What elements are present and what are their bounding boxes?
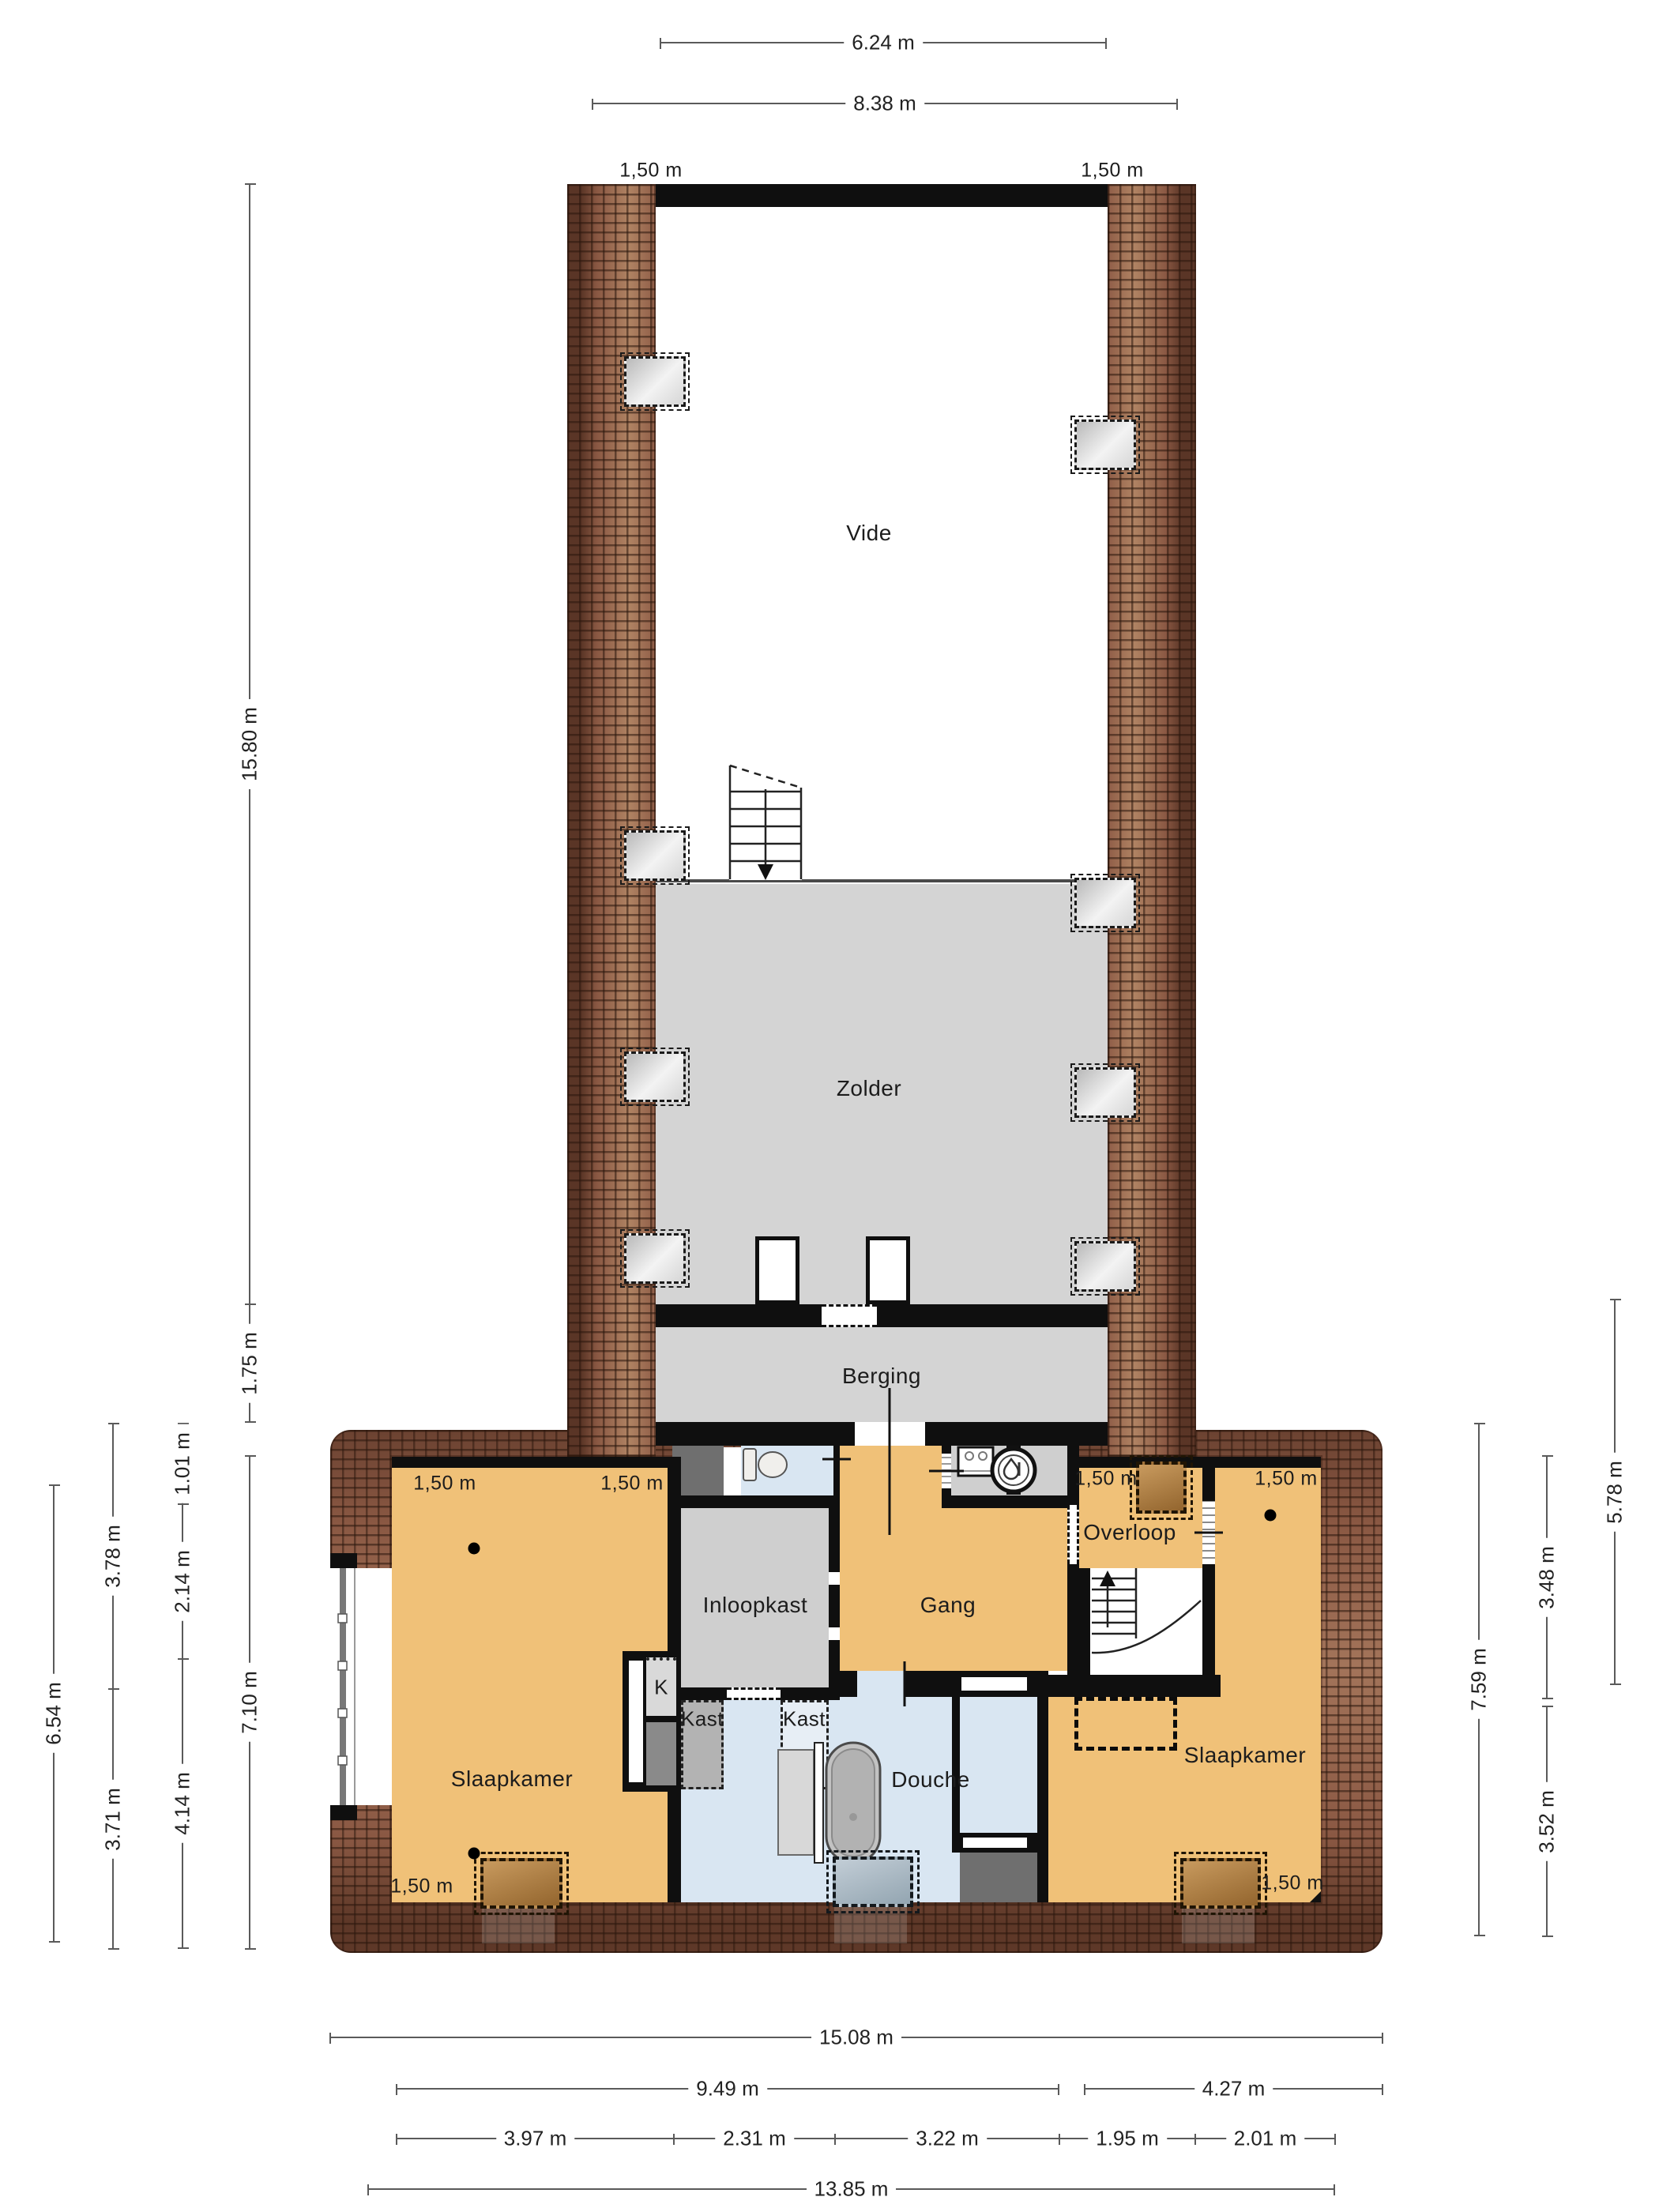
skylight-dashed-icon [833,1856,913,1907]
label-douche: Douche [891,1767,970,1793]
dim-bottom-3-97: 3.97 m [397,2138,674,2139]
dim-bottom-2-01: 2.01 m [1195,2138,1335,2139]
headroom-label: 1,50 m [390,1875,453,1898]
label-kast-k: K [654,1676,668,1700]
label-kast-left: Kast [681,1707,724,1732]
skylight-dashed-icon [1136,1461,1187,1514]
headroom-label: 1,50 m [600,1473,663,1495]
dim-bottom-9-49: 9.49 m [397,2088,1059,2090]
dim-bottom-1-95: 1.95 m [1059,2138,1195,2139]
roof-window-dashed-icon [1074,1067,1136,1118]
label-berging: Berging [842,1364,921,1389]
dim-right-7-59: 7.59 m [1478,1424,1480,1935]
label-zolder: Zolder [837,1076,901,1101]
label-slaapkamer-left: Slaapkamer [451,1766,573,1792]
window-west-frame [338,1568,355,1805]
door-tick-marks [822,1388,1223,1706]
roof-window-dashed-icon [1074,878,1136,928]
boiler-icon [992,1446,1035,1495]
roof-window-dashed-icon [624,1233,686,1284]
headroom-label: 1,50 m [1261,1872,1323,1895]
dim-bottom-3-22: 3.22 m [835,2138,1059,2139]
dim-top-6-24: 6.24 m [660,42,1106,43]
headroom-label: 1,50 m [1074,1468,1137,1491]
stairs-down-arrow-icon [730,766,801,880]
dim-left-4-14: 4.14 m [182,1659,183,1948]
skylight-dashed-icon [1180,1858,1261,1909]
label-overloop: Overloop [1083,1520,1176,1545]
roof-window-dashed-icon [1074,419,1136,470]
skylight-dashed-icon [480,1858,562,1909]
dim-bottom-15-08: 15.08 m [330,2037,1382,2038]
dim-bottom-4-27: 4.27 m [1085,2088,1382,2090]
label-gang: Gang [920,1593,976,1618]
dim-left-1-01: 1.01 m [182,1424,183,1504]
stairs-up-arrow-icon [1092,1568,1201,1653]
headroom-label: 1,50 m [1255,1468,1317,1491]
dim-left-1-75: 1.75 m [249,1304,250,1422]
headroom-label: 1,50 m [619,160,682,182]
roof-window-dashed-icon [624,1051,686,1102]
roof-window-dashed-icon [624,830,686,881]
dim-right-3-48: 3.48 m [1546,1456,1548,1698]
dim-right-3-52: 3.52 m [1546,1706,1548,1936]
headroom-label: 1,50 m [1081,160,1143,182]
label-inloopkast: Inloopkast [703,1593,808,1618]
label-vide: Vide [846,521,892,546]
label-slaapkamer-right: Slaapkamer [1184,1743,1306,1768]
floor-plan: Vide Zolder Berging Slaapkamer Inloopkas… [0,0,1659,2212]
dim-top-8-38: 8.38 m [592,103,1177,104]
vanity-cabinet-icon [778,1743,823,1863]
dim-bottom-2-31: 2.31 m [674,2138,835,2139]
ceiling-spot-dot-icon [468,1848,480,1860]
headroom-label: 1,50 m [413,1473,476,1495]
ceiling-spot-dot-icon [468,1543,480,1555]
dim-left-3-71: 3.71 m [112,1689,114,1949]
future-skylight-outline [1074,1697,1177,1751]
roof-window-dashed-icon [1074,1241,1136,1292]
ceiling-spot-dot-icon [1265,1510,1277,1522]
label-kast-right: Kast [783,1707,826,1732]
roof-window-dashed-icon [624,356,686,407]
bathtub-icon [826,1743,880,1863]
toilet-icon [743,1449,787,1480]
dim-right-5-78: 5.78 m [1614,1300,1616,1684]
dim-left-3-78: 3.78 m [112,1424,114,1689]
dim-left-7-10: 7.10 m [249,1456,250,1949]
dim-bottom-13-85: 13.85 m [368,2188,1334,2190]
dim-left-2-14: 2.14 m [182,1504,183,1659]
dim-left-15-80: 15.80 m [249,184,250,1304]
dim-left-6-54: 6.54 m [53,1485,55,1942]
